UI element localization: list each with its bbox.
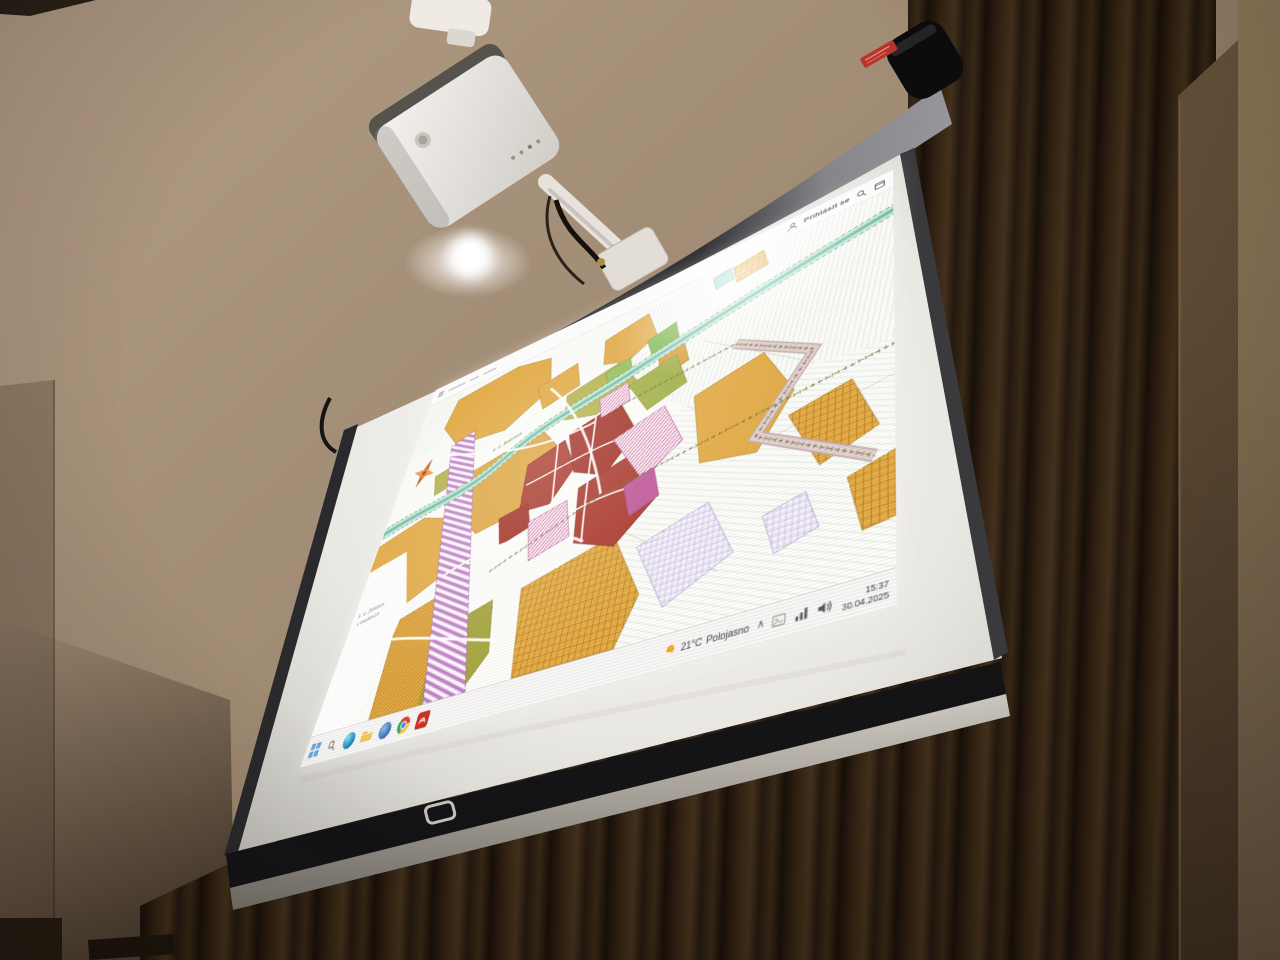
picture-frame	[0, 918, 62, 960]
search-icon[interactable]	[856, 186, 868, 200]
curtain-panel-light	[1178, 40, 1238, 960]
cable-connector	[597, 258, 605, 266]
document-title-blur	[469, 375, 479, 381]
person-icon	[787, 220, 799, 234]
tray-photo-icon[interactable]	[772, 610, 788, 630]
taskbar-clock[interactable]: 15:37 30.04.2025	[842, 578, 889, 614]
file-explorer-icon[interactable]	[358, 726, 375, 746]
conference-room-photo: Přihlásit se	[0, 0, 1280, 960]
chrome-icon[interactable]	[395, 715, 412, 735]
volume-icon[interactable]	[818, 596, 834, 616]
lens-hotspot	[461, 245, 479, 263]
acrobat-icon[interactable]	[414, 710, 431, 730]
weather-condition: Polojasno	[705, 622, 749, 646]
window-icon[interactable]	[874, 178, 886, 192]
network-icon[interactable]	[795, 604, 810, 623]
messenger-icon[interactable]	[376, 720, 393, 740]
start-button-icon[interactable]	[307, 740, 323, 759]
weather-icon	[663, 641, 677, 659]
weather-temp: 21°C	[680, 636, 703, 654]
tray-chevron-icon[interactable]: ∧	[757, 616, 766, 631]
edge-icon[interactable]	[341, 731, 358, 751]
right-wall	[1238, 0, 1280, 960]
menu-icon[interactable]	[436, 389, 445, 400]
taskbar-search-icon[interactable]	[323, 736, 340, 755]
document-title-blur	[483, 367, 497, 375]
